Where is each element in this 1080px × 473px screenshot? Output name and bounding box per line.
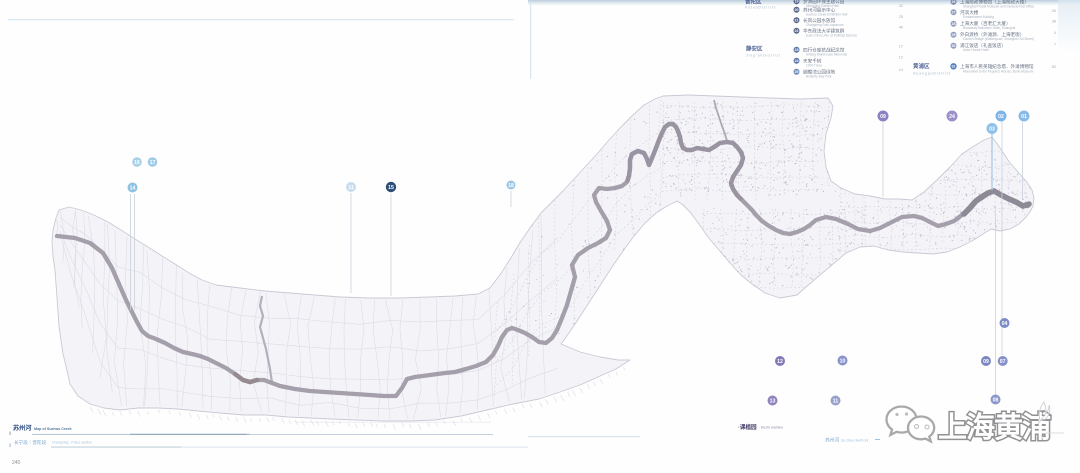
svg-text:1000 Trees: 1000 Trees	[806, 64, 822, 68]
svg-text:·课植园: ·课植园	[738, 423, 757, 431]
svg-text:Suzhou Creek Exhibition Hall: Suzhou Creek Exhibition Hall	[806, 13, 848, 17]
svg-text:13: 13	[770, 399, 776, 405]
svg-text:17: 17	[899, 44, 903, 48]
svg-text:16: 16	[134, 160, 140, 166]
svg-text:Broadway Mansions Hotel, Shang: Broadway Mansions Hotel, Shanghai	[963, 26, 1016, 30]
svg-text:Changfeng Park Aquarium: Changfeng Park Aquarium	[806, 23, 844, 27]
svg-text:04: 04	[1002, 321, 1008, 327]
svg-text:25: 25	[795, 70, 799, 74]
svg-text:21: 21	[795, 19, 799, 23]
svg-text:52: 52	[1052, 65, 1056, 69]
svg-text:上海黄浦: 上海黄浦	[938, 411, 1051, 444]
svg-text:23: 23	[795, 48, 799, 52]
svg-text:H u a n g p u D i s t r i c t: H u a n g p u D i s t r i c t	[913, 71, 950, 75]
svg-text:29: 29	[952, 33, 956, 37]
svg-text:Garden Bridge (Waitanyuan, Sha: Garden Bridge (Waitanyuan, Shanghai Old …	[963, 37, 1034, 41]
svg-text:Mengqing Garden Park: Mengqing Garden Park	[806, 4, 839, 8]
svg-text:J i n g ' a n D i s t r i c t: J i n g ' a n D i s t r i c t	[746, 53, 780, 57]
svg-text:长宁段｜普陀段: 长宁段｜普陀段	[14, 439, 47, 446]
svg-text:09: 09	[880, 114, 886, 120]
svg-text:10: 10	[840, 359, 846, 365]
svg-text:苏州河 Su zhou riverfront: 苏州河 Su zhou riverfront	[825, 437, 868, 444]
svg-text:26: 26	[1052, 9, 1056, 13]
svg-text:Map of Suzhou Creek: Map of Suzhou Creek	[34, 427, 72, 431]
svg-text:18: 18	[508, 183, 514, 189]
svg-text:22: 22	[795, 29, 799, 33]
svg-text:25: 25	[899, 15, 903, 19]
svg-text:Butterfly Bay Park: Butterfly Bay Park	[806, 75, 832, 79]
svg-text:24: 24	[795, 59, 799, 63]
svg-text:26: 26	[952, 0, 956, 4]
svg-text:38: 38	[1052, 19, 1056, 23]
svg-text:30: 30	[952, 44, 956, 48]
svg-text:4: 4	[1054, 31, 1056, 35]
svg-text:17: 17	[150, 160, 156, 166]
svg-text:7: 7	[1054, 42, 1056, 46]
svg-text:27: 27	[952, 11, 956, 15]
svg-text:Monument to the People's Heroe: Monument to the People's Heroes, Bund Mu…	[963, 69, 1034, 73]
svg-text:Embankment Building: Embankment Building	[963, 15, 994, 19]
svg-text:20: 20	[795, 8, 799, 12]
svg-text:24: 24	[949, 114, 955, 120]
svg-text:11: 11	[833, 399, 839, 405]
svg-text:12: 12	[777, 359, 783, 365]
svg-text:02: 02	[998, 114, 1004, 120]
svg-text:P u t u o D i s t r i c t: P u t u o D i s t r i c t	[745, 5, 776, 9]
svg-text:28: 28	[952, 22, 956, 26]
svg-text:静安区: 静安区	[746, 44, 763, 52]
svg-text:Changning - Putuo section: Changning - Putuo section	[52, 441, 92, 445]
svg-text:Kezhi Garden: Kezhi Garden	[761, 426, 783, 430]
svg-text:31: 31	[952, 65, 956, 69]
svg-text:40: 40	[899, 25, 903, 29]
svg-text:15: 15	[388, 185, 394, 191]
svg-text:03: 03	[989, 127, 995, 133]
svg-text:Sihang Warehouse Memorial: Sihang Warehouse Memorial	[806, 53, 847, 57]
svg-text:East China Univ. of Political: East China Univ. of Political Science	[806, 34, 857, 38]
svg-text:Shanghai Postal Museum and Gen: Shanghai Postal Museum and General Post …	[963, 5, 1034, 9]
svg-text:09: 09	[983, 359, 989, 365]
svg-text:07: 07	[1000, 359, 1006, 365]
svg-text:08: 08	[993, 398, 999, 404]
svg-text:19: 19	[795, 0, 799, 4]
svg-text:32: 32	[899, 4, 903, 8]
svg-text:14: 14	[130, 186, 136, 192]
svg-text:240: 240	[12, 460, 21, 466]
svg-text:01: 01	[1021, 114, 1027, 120]
svg-text:14: 14	[899, 68, 903, 72]
svg-text:苏州河: 苏州河	[13, 424, 32, 432]
svg-text:黄浦区: 黄浦区	[913, 62, 930, 70]
svg-text:11: 11	[348, 185, 354, 191]
svg-text:12: 12	[899, 55, 903, 59]
svg-text:Astor House Hotel: Astor House Hotel	[963, 48, 989, 52]
